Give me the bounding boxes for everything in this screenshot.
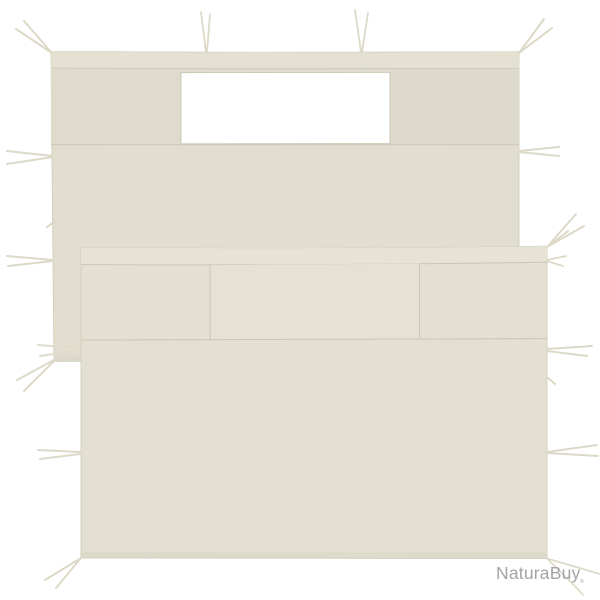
- svg-text:®: ®: [580, 578, 584, 585]
- svg-text:NaturaBuy: NaturaBuy: [496, 563, 581, 583]
